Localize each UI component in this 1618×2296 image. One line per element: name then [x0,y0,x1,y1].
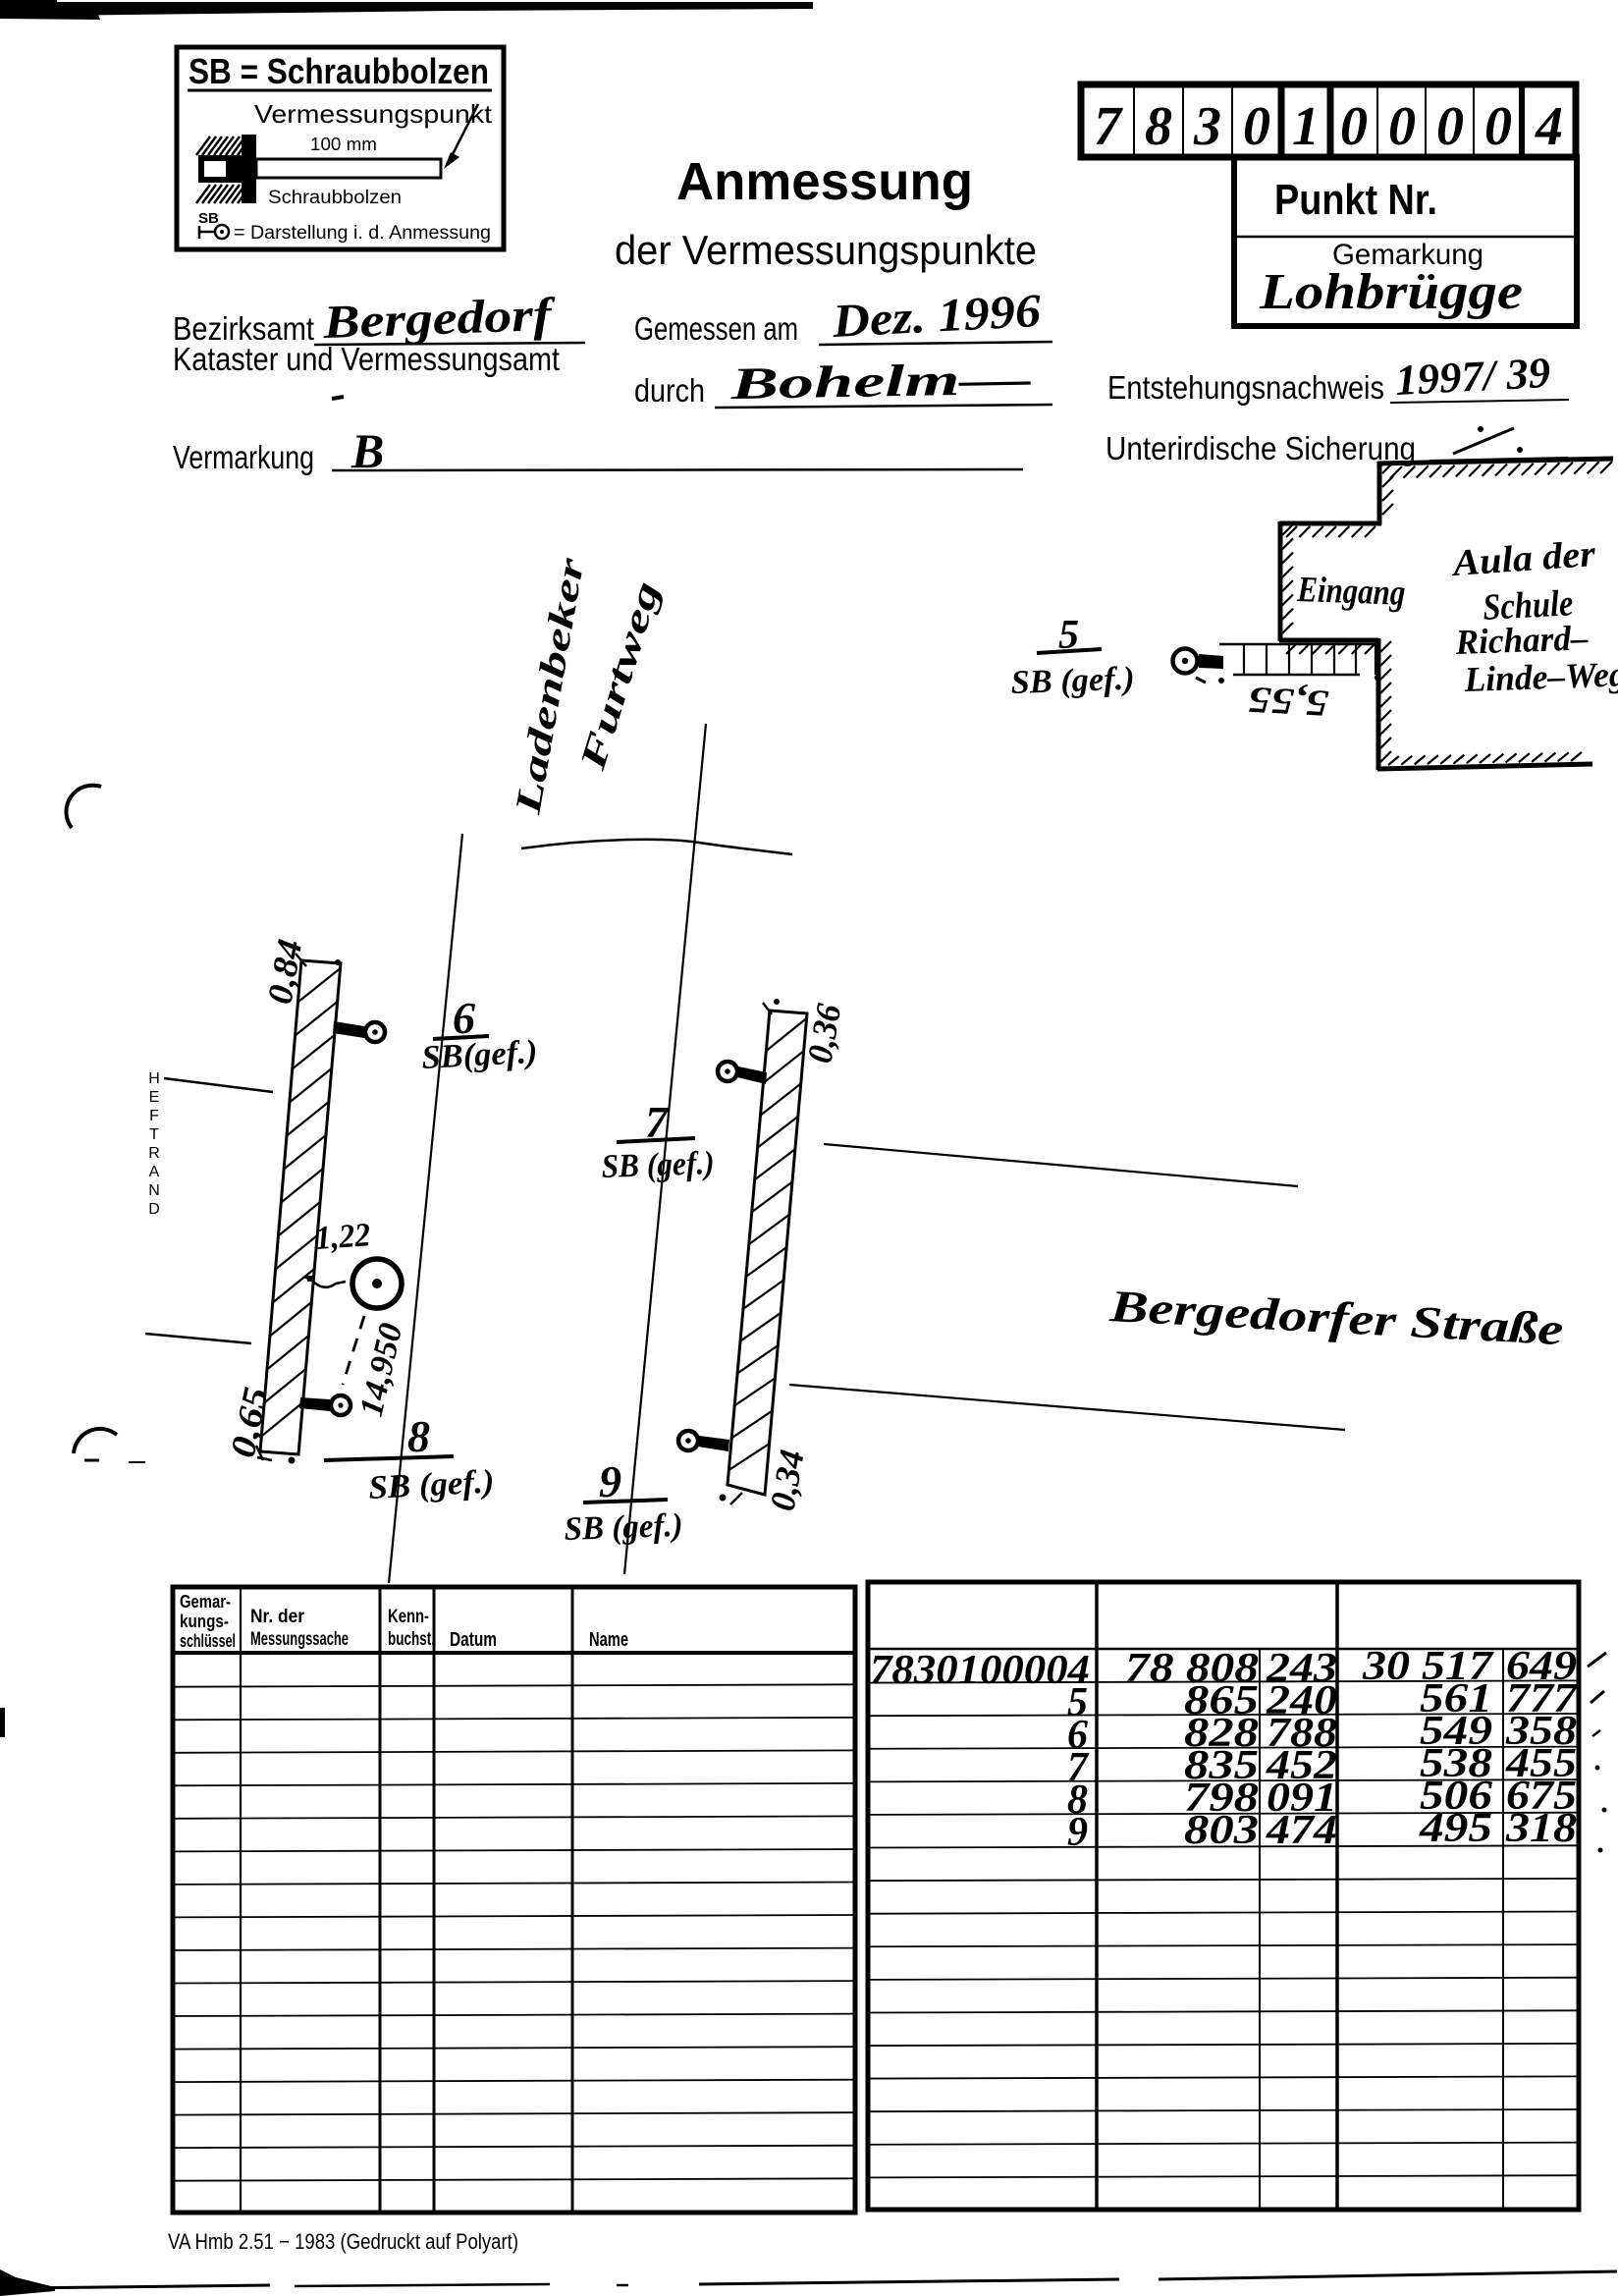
svg-text:Gemessen am: Gemessen am [634,310,798,347]
svg-text:SB: SB [198,210,219,227]
svg-text:Nr. der: Nr. der [250,1607,305,1627]
svg-text:Bohelm—: Bohelm— [729,354,1031,409]
svg-text:14,950: 14,950 [353,1320,410,1420]
svg-text:Bergedorfer Straße: Bergedorfer Straße [1107,1281,1564,1354]
svg-text:Eingang: Eingang [1296,570,1406,614]
svg-text:der Vermessungspunkte: der Vermessungspunkte [615,227,1037,273]
svg-text:Bergedorf: Bergedorf [321,289,557,349]
svg-text:0: 0 [1340,96,1368,157]
svg-text:7830100004: 7830100004 [870,1648,1090,1693]
svg-text:474: 474 [1266,1808,1337,1853]
svg-text:buchst.: buchst. [388,1629,435,1650]
svg-text:= Darstellung i. d. Anmessung: = Darstellung i. d. Anmessung [234,223,491,244]
svg-text:8: 8 [1145,96,1172,157]
svg-text:F: F [149,1108,159,1124]
svg-text:Entstehungsnachweis: Entstehungsnachweis [1107,369,1384,406]
svg-text:SB(gef.): SB(gef.) [420,1034,538,1076]
svg-text:SB = Schraubbolzen: SB = Schraubbolzen [189,51,489,91]
svg-text:9: 9 [599,1456,621,1506]
svg-text:SB (gef.): SB (gef.) [1010,661,1135,701]
svg-text:0: 0 [1436,96,1464,157]
svg-text:durch: durch [634,372,705,409]
svg-text:Kenn-: Kenn- [388,1607,429,1627]
svg-text:318: 318 [1505,1806,1577,1851]
svg-text:Schraubbolzen: Schraubbolzen [268,188,402,208]
svg-text:1,22: 1,22 [314,1217,371,1257]
svg-text:schlüssel: schlüssel [180,1631,236,1651]
svg-text:Furtweg: Furtweg [572,576,669,776]
svg-text:Anmessung: Anmessung [676,152,973,211]
svg-text:7: 7 [1094,96,1123,157]
svg-text:T: T [149,1126,159,1143]
svg-text:R: R [148,1145,160,1162]
svg-text:1: 1 [1292,96,1320,157]
svg-text:Unterirdische Sicherung: Unterirdische Sicherung [1106,430,1416,466]
svg-text:SB (gef.): SB (gef.) [367,1463,495,1506]
svg-text:Linde–Weg: Linde–Weg [1463,654,1618,699]
svg-text:H: H [148,1070,160,1087]
svg-text:Vermessungspunkt: Vermessungspunkt [254,99,493,129]
svg-text:Punkt Nr.: Punkt Nr. [1274,176,1437,224]
svg-text:A: A [149,1164,160,1180]
svg-text:Messungssache: Messungssache [250,1629,349,1650]
svg-text:495: 495 [1419,1806,1492,1851]
svg-text:D: D [148,1201,160,1218]
svg-text:5,55: 5,55 [1247,679,1329,724]
svg-text:803: 803 [1184,1808,1259,1853]
svg-text:SB (gef.): SB (gef.) [564,1507,683,1548]
svg-text:Datum: Datum [450,1629,497,1651]
svg-text:Aula der: Aula der [1450,533,1598,584]
svg-text:Vermarkung: Vermarkung [173,439,314,475]
svg-text:3: 3 [1193,96,1221,157]
svg-text:0,34: 0,34 [762,1447,811,1513]
svg-text:E: E [149,1089,160,1106]
svg-text:kungs-: kungs- [180,1612,229,1631]
svg-text:Lohbrügge: Lohbrügge [1259,264,1523,320]
svg-text:SB (gef.): SB (gef.) [601,1145,715,1185]
svg-text:0: 0 [1484,96,1512,157]
svg-text:N: N [148,1182,160,1199]
svg-text:Name: Name [589,1629,628,1651]
svg-text:1997/ 39: 1997/ 39 [1394,349,1551,405]
svg-text:Kataster und Vermessungsamt: Kataster und Vermessungsamt [173,341,560,377]
svg-text:0: 0 [1388,96,1416,157]
svg-text:100 mm: 100 mm [310,135,377,154]
svg-text:9: 9 [1067,1810,1088,1855]
svg-text:Ladenbeker: Ladenbeker [508,555,592,818]
svg-text:8: 8 [407,1411,430,1461]
svg-text:4: 4 [1535,96,1563,157]
svg-text:Gemar-: Gemar- [180,1592,231,1612]
svg-text:0: 0 [1243,96,1270,157]
svg-text:Dez. 1996: Dez. 1996 [831,285,1043,348]
svg-text:0,36: 0,36 [799,1001,848,1066]
svg-text:VA Hmb 2.51 − 1983 (Gedruckt a: VA Hmb 2.51 − 1983 (Gedruckt auf Polyart… [168,2229,518,2254]
